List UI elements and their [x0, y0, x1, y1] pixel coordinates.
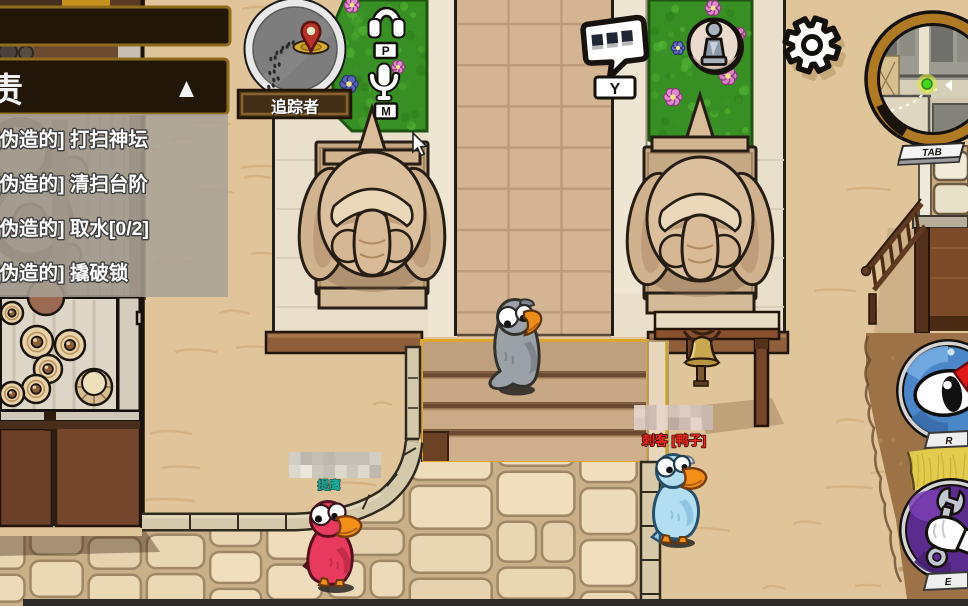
- svg-text:提鹰: 提鹰: [318, 478, 341, 492]
- svg-text:[伪造的] 撬破锁: [伪造的] 撬破锁: [0, 262, 129, 285]
- svg-text:Y: Y: [610, 81, 621, 98]
- svg-text:E: E: [944, 577, 952, 588]
- svg-text:P: P: [382, 44, 390, 58]
- svg-text:刺客 [鸭子]: 刺客 [鸭子]: [642, 433, 706, 448]
- svg-text:[伪造的] 打扫神坛: [伪造的] 打扫神坛: [0, 128, 148, 151]
- svg-text:M: M: [381, 107, 391, 119]
- svg-text:责: 责: [0, 72, 23, 110]
- svg-text:[伪造的] 清扫台阶: [伪造的] 清扫台阶: [0, 173, 148, 196]
- svg-text:追踪者: 追踪者: [271, 98, 319, 117]
- svg-text:R: R: [945, 436, 954, 447]
- svg-text:[伪造的] 取水[0/2]: [伪造的] 取水[0/2]: [0, 217, 149, 240]
- svg-text:TAB: TAB: [922, 147, 942, 159]
